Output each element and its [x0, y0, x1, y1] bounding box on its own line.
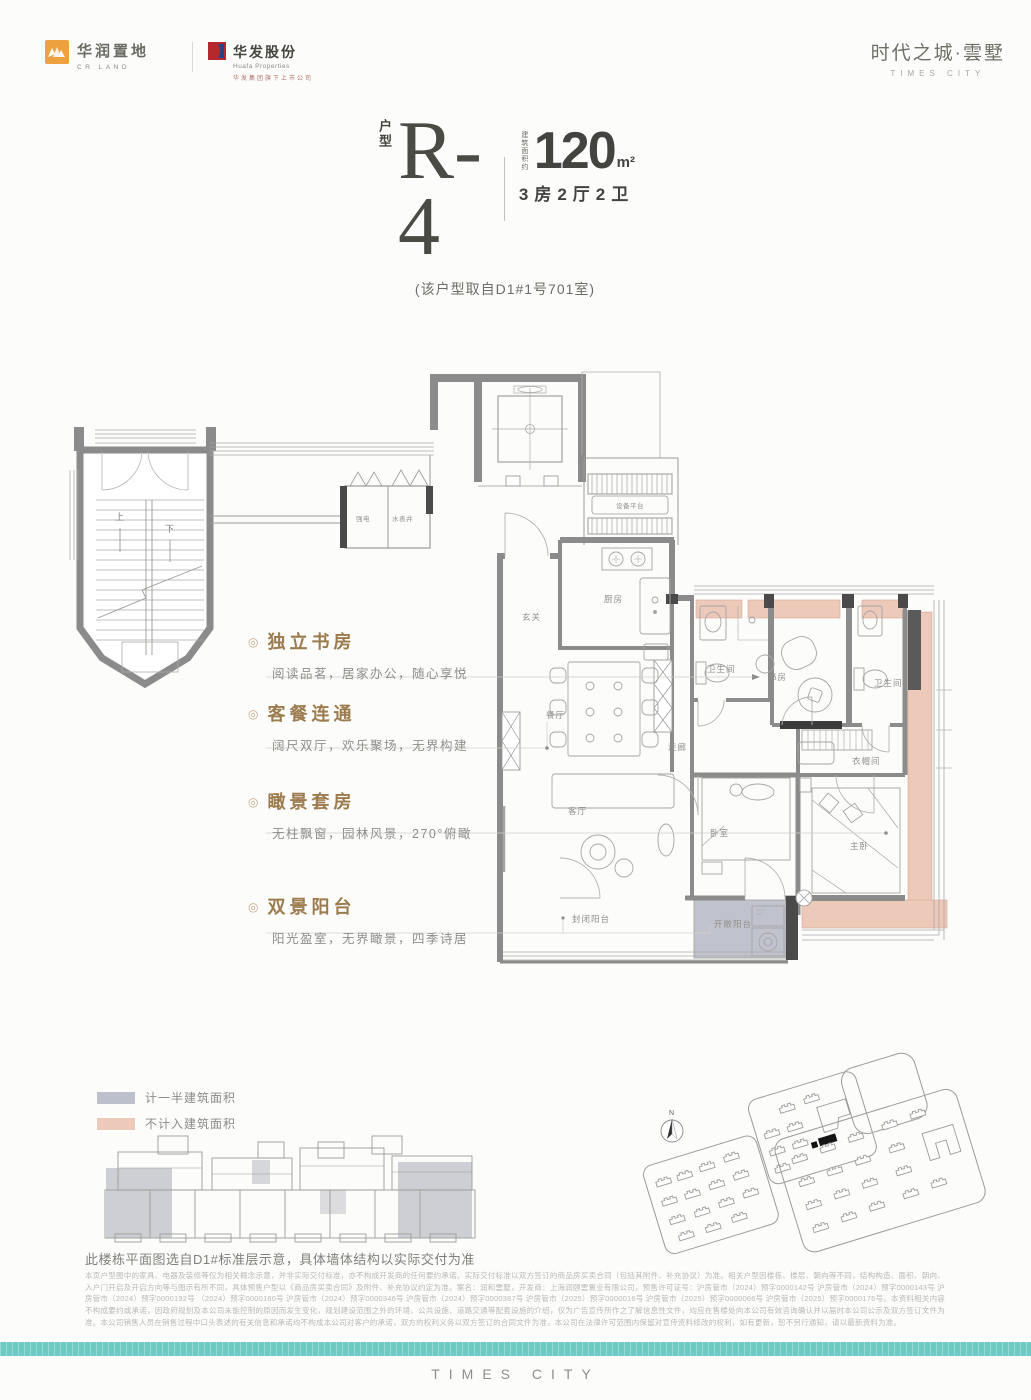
corridor-label: 走廊	[668, 742, 687, 752]
door-arcs	[505, 513, 889, 898]
header: 华润置地 CR LAND 华发股份 Huafa Properties 华发集团旗…	[45, 38, 1005, 88]
feature-bullet-icon: ◎	[248, 635, 258, 649]
compass-label: N	[669, 1110, 674, 1117]
header-divider	[192, 42, 193, 72]
rooms-summary: 3房2厅2卫	[519, 180, 635, 205]
feature-desc: 无柱飘窗，园林风景，270°俯瞰	[248, 823, 488, 842]
feature-item: ◎双景阳台 阳光盈室，无界瞰景，四季诗居	[248, 893, 488, 947]
open-balcony-fill	[694, 900, 786, 958]
key-plan-note: 此楼栋平面图选自D1#标准层示意，具体墙体结构以实际交付为准	[85, 1249, 685, 1268]
unit-code: R-4	[398, 113, 488, 265]
huafa-name: 华发股份	[233, 42, 313, 62]
feature-desc: 阔尺双厅，欢乐聚场，无界构建	[248, 735, 488, 754]
feature-item: ◎瞰景套房 无柱飘窗，园林风景，270°俯瞰	[248, 788, 488, 842]
site-plan: N	[641, 1050, 988, 1256]
area-legend: 计一半建筑面积 不计入建筑面积	[97, 1089, 236, 1141]
dining-label: 餐厅	[546, 710, 565, 720]
stair-down-label: 下	[165, 524, 174, 534]
huafa-icon	[208, 42, 226, 60]
legal-disclaimer: 本页户型图中的家具、电器及装修等仅为相关概念示意，并非实际交付标准，亦不构成开发…	[85, 1270, 945, 1328]
legend-row: 计一半建筑面积	[97, 1089, 236, 1106]
feature-title: 独立书房	[267, 632, 355, 652]
master-bath-label: 卫生间	[874, 678, 903, 688]
half-area-swatch	[97, 1092, 135, 1104]
shaft-columns	[502, 660, 812, 906]
compass: N	[661, 1110, 683, 1142]
footer-brand: TIMES CITY	[0, 1366, 1031, 1382]
floor-plan: 上 下 强电 水表井	[70, 372, 952, 962]
parcel-2	[746, 1069, 879, 1186]
excluded-area-swatch	[97, 1118, 135, 1130]
cr-land-name: 华润置地	[77, 40, 149, 61]
unit-source-note: (该户型取自D1#1号701室)	[375, 279, 635, 299]
feature-item: ◎客餐连通 阔尺双厅，欢乐聚场，无界构建	[248, 700, 488, 754]
feature-title: 瞰景套房	[267, 792, 355, 812]
public-corridor	[210, 443, 434, 548]
area-prefix: 建筑面积约	[519, 131, 529, 171]
title-block: 户型 R-4 建筑面积约 120 m² 3房2厅2卫 (该户型取自D1#1号70…	[375, 113, 635, 299]
equipment-platform	[582, 372, 678, 545]
kitchen-label: 厨房	[604, 594, 623, 604]
key-plan	[105, 1136, 475, 1242]
feature-bullet-icon: ◎	[248, 707, 258, 721]
study-label: 书房	[768, 672, 787, 682]
area-value: 120	[534, 131, 615, 171]
huafa-tagline: 华发集团旗下上市公司	[233, 73, 313, 82]
floorplan-poster: { "brand": { "cr_name": "华润置地", "cr_sub"…	[0, 0, 1031, 1400]
foyer-label: 玄关	[522, 612, 541, 622]
stair-up-label: 上	[115, 512, 124, 522]
elevator	[434, 378, 582, 486]
living-label: 客厅	[568, 806, 587, 816]
feature-desc: 阅读品茗，居家办公，随心享悦	[248, 663, 488, 682]
project-logo: 时代之城·雲墅 TIMES CITY	[871, 38, 1005, 78]
huafa-logo: 华发股份 Huafa Properties 华发集团旗下上市公司	[208, 42, 313, 82]
feature-title: 客餐连通	[267, 704, 355, 724]
title-divider	[504, 157, 505, 221]
huafa-sub: Huafa Properties	[233, 63, 313, 70]
area-unit: m²	[617, 154, 635, 171]
feature-bullet-icon: ◎	[248, 795, 258, 809]
parcel-4	[772, 1086, 988, 1254]
parcel-1	[641, 1134, 781, 1256]
equipment-platform-label: 设备平台	[616, 501, 644, 510]
project-name: 时代之城·雲墅	[871, 38, 1005, 65]
open-balcony-label: 开敞阳台	[714, 919, 752, 929]
footer-accent-band	[0, 1342, 1031, 1356]
feature-desc: 阳光盈室，无界瞰景，四季诗居	[248, 928, 488, 947]
feature-item: ◎独立书房 阅读品茗，居家办公，随心享悦	[248, 628, 488, 682]
cr-land-sub: CR LAND	[77, 64, 149, 71]
stairwell	[70, 427, 216, 684]
unit-type-label: 户型	[375, 119, 394, 149]
project-latin: TIMES CITY	[871, 69, 1005, 78]
legend-label: 不计入建筑面积	[145, 1115, 236, 1132]
enclosed-balcony-label: 封闭阳台	[572, 914, 610, 924]
feature-title: 双景阳台	[267, 897, 355, 917]
legend-row: 不计入建筑面积	[97, 1115, 236, 1132]
strong-electric-label: 强电	[356, 514, 370, 523]
master-label: 主卧	[850, 841, 869, 851]
cr-land-icon	[45, 40, 69, 64]
cr-land-logo: 华润置地 CR LAND	[45, 40, 149, 71]
water-meter-label: 水表井	[392, 514, 413, 523]
closet-label: 衣帽间	[852, 756, 881, 766]
legend-label: 计一半建筑面积	[145, 1089, 236, 1106]
feature-bullet-icon: ◎	[248, 900, 258, 914]
guest-bath-label: 卫生间	[707, 664, 736, 674]
bedroom-label: 卧室	[710, 828, 729, 838]
